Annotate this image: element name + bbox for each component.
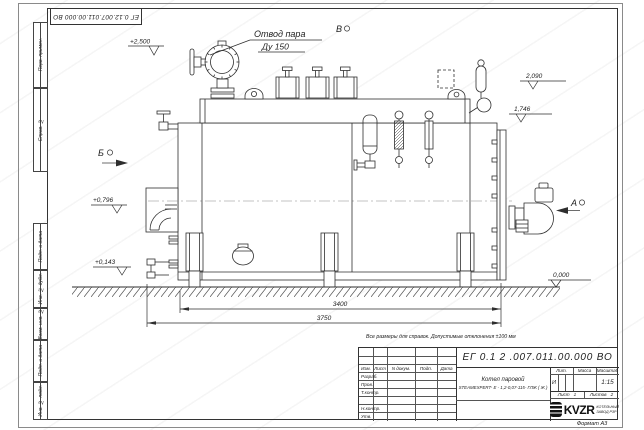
safety-valve <box>334 67 357 98</box>
col-header-list: Лист <box>373 364 387 372</box>
elevation-mark-0143: +0,143 <box>93 259 131 275</box>
doc-number: ЕГ 0.1 2 .007.011.00.000 ВО <box>456 348 619 367</box>
svg-text:Б: Б <box>98 148 104 158</box>
kvzr-logo-text: KVZR <box>564 403 595 417</box>
row-prov: Пров. <box>359 380 387 388</box>
side-valve <box>157 111 178 130</box>
steam-outlet-valve <box>190 41 239 98</box>
elevation-mark-0000: 0,000 <box>548 272 591 287</box>
ground <box>72 287 560 297</box>
col-header-podp: Подп. <box>415 364 437 372</box>
sheet-label: Лист <box>558 392 570 397</box>
svg-text:0,000: 0,000 <box>553 272 570 279</box>
svg-text:+0,143: +0,143 <box>95 259 115 266</box>
hidden-nozzle <box>438 70 454 88</box>
sheets-label: Листов <box>590 392 607 397</box>
svg-text:В: В <box>336 24 342 34</box>
elevation-mark-2090: 2,090 <box>520 73 566 89</box>
front-fittings <box>147 236 178 278</box>
elevation-mark-1746: 1,746 <box>509 106 552 122</box>
lifting-lug <box>448 90 465 99</box>
sheets-value: 2 <box>611 392 614 397</box>
safety-valve <box>276 67 299 98</box>
col-header-data: Дата <box>437 364 456 372</box>
lit-label: Лит. <box>550 367 573 374</box>
product-name: Котел паровой STEAMEXPERT- Е - 1,2-0,07-… <box>456 367 550 400</box>
dim-3400-label: 3400 <box>333 301 348 308</box>
mass-label: Масса <box>573 367 596 374</box>
svg-text:2,090: 2,090 <box>525 73 543 80</box>
col-header-izm: Изм. <box>359 364 373 372</box>
elevation-mark-2500: +2,500 <box>128 39 164 56</box>
row-nkontr: Н.контр. <box>359 404 387 412</box>
svg-text:Ду 150: Ду 150 <box>261 42 289 52</box>
dim-3750-label: 3750 <box>317 315 332 322</box>
sheet-cell: Лист 1 <box>550 391 584 398</box>
safety-valve <box>306 67 329 98</box>
section-mark-v: В <box>336 24 350 34</box>
svg-text:Отвод пара: Отвод пара <box>254 29 305 39</box>
company-name: КОТЕЛЬНЫЙ ЗАВОД РЗР <box>596 405 619 414</box>
company-logo: KVZR КОТЕЛЬНЫЙ ЗАВОД РЗР <box>550 398 619 421</box>
section-mark-b: Б <box>98 148 128 166</box>
sheets-cell: Листов 2 <box>584 391 619 398</box>
svg-text:А: А <box>570 198 577 208</box>
kvzr-logo-icon <box>550 402 562 417</box>
row-utv: Утв. <box>359 412 387 421</box>
section-mark-a: А <box>556 198 585 214</box>
product-name-line2: STEAMEXPERT- Е - 1,2-0,07-115- ГЛЖ ( Ж ) <box>459 385 548 390</box>
svg-text:+0,796: +0,796 <box>93 197 113 204</box>
lit-value: И <box>550 374 558 391</box>
scale-value: 1:15 <box>596 374 619 391</box>
format-label: Формат А3 <box>566 421 618 427</box>
title-block: Изм. Лист N докум. Подп. Дата Разраб. Пр… <box>358 347 618 420</box>
elevation-mark-0796: +0,796 <box>91 197 127 213</box>
reference-note: Все размеры для справок. Допустимые откл… <box>366 334 506 340</box>
company-name-line2: ЗАВОД РЗР <box>596 410 619 414</box>
svg-text:+2,500: +2,500 <box>130 39 150 46</box>
feed-pump <box>509 183 553 234</box>
pressure-gauge <box>469 60 491 113</box>
product-name-line1: Котел паровой <box>481 377 524 383</box>
lifting-lug <box>245 89 263 99</box>
sheet-value: 1 <box>574 392 577 397</box>
scale-label: Масштаб <box>596 367 619 374</box>
drawing-sheet: Перв. примен. Справ. № Подп. и дата Инв.… <box>0 0 644 430</box>
row-tkontr: Т.контр. <box>359 388 387 396</box>
col-header-ndoc: N докум. <box>387 364 415 372</box>
svg-text:1,746: 1,746 <box>514 106 531 113</box>
row-razrab: Разраб. <box>359 372 387 380</box>
